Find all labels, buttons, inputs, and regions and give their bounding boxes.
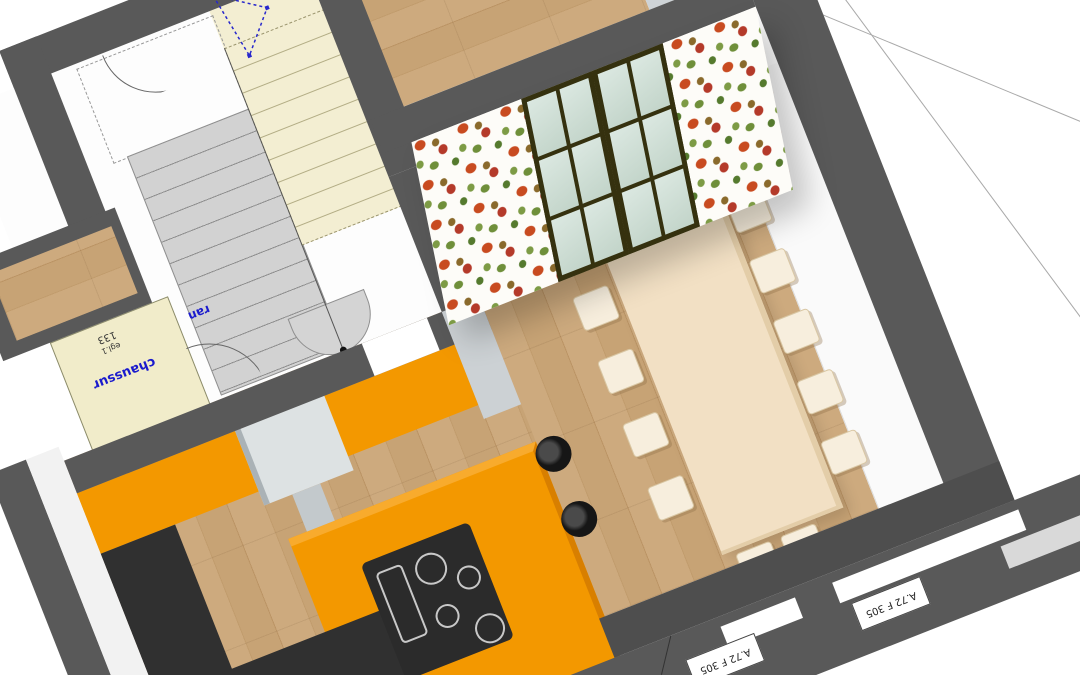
glass-pane [654,168,694,234]
burner-large-1 [410,548,452,590]
plan-line-diagonal [823,14,1080,124]
burner-small-1 [453,562,484,593]
glass-pane [583,196,623,262]
burner-large-2 [471,609,510,648]
burner-small-2 [432,600,463,631]
glass-pane [630,50,670,116]
3d-floorplan-viewport[interactable]: 133 egl.1 chaussur ran [0,0,1080,675]
glass-pane [642,109,682,175]
glass-pane [571,137,611,203]
glass-pane [559,78,599,144]
floorplan-scene: 133 egl.1 chaussur ran [0,0,1080,675]
